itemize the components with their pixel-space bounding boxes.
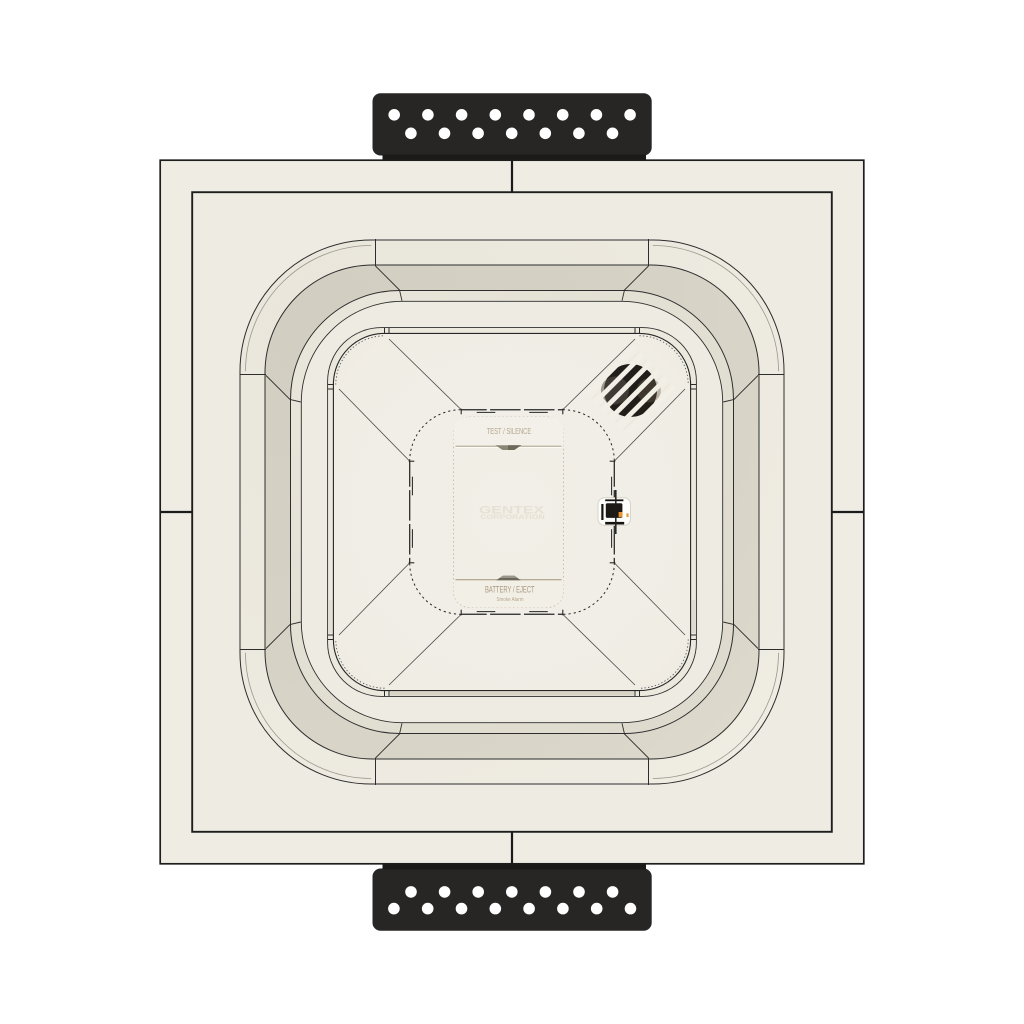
svg-text:Smoke Alarm: Smoke Alarm bbox=[497, 597, 524, 603]
svg-text:TEST / SILENCE: TEST / SILENCE bbox=[487, 426, 532, 436]
svg-text:BATTERY / EJECT: BATTERY / EJECT bbox=[485, 584, 535, 594]
svg-text:CORPORATION: CORPORATION bbox=[480, 514, 545, 521]
